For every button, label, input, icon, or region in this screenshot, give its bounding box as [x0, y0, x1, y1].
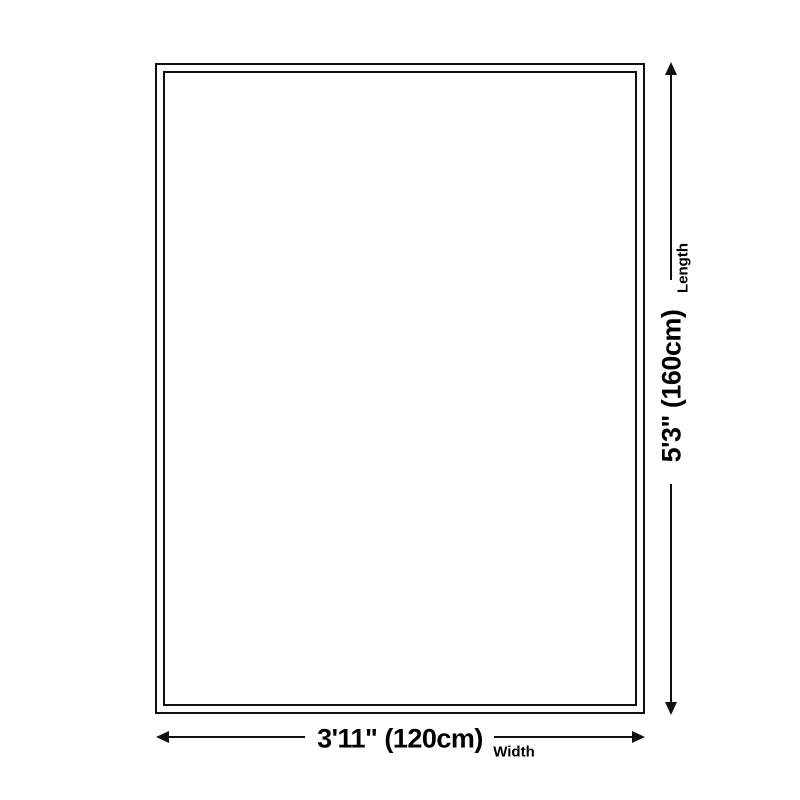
- arrow-right-icon: [632, 731, 645, 743]
- length-dimension-line-bottom: [670, 484, 672, 702]
- width-axis-label: Width: [493, 744, 535, 761]
- product-outline-inner: [163, 71, 637, 706]
- length-dimension-line-top: [670, 73, 672, 280]
- diagram-canvas: Length 5'3" (160cm) 3'11" (120cm) Width: [0, 0, 800, 800]
- arrow-down-icon: [665, 702, 677, 715]
- width-dimension-line-left: [167, 736, 305, 738]
- length-dimension-value: 5'3" (160cm): [657, 310, 688, 463]
- width-dimension-line-right: [494, 736, 632, 738]
- length-axis-label: Length: [675, 243, 692, 293]
- product-outline-outer: [155, 63, 645, 714]
- width-dimension-value: 3'11" (120cm): [317, 724, 483, 755]
